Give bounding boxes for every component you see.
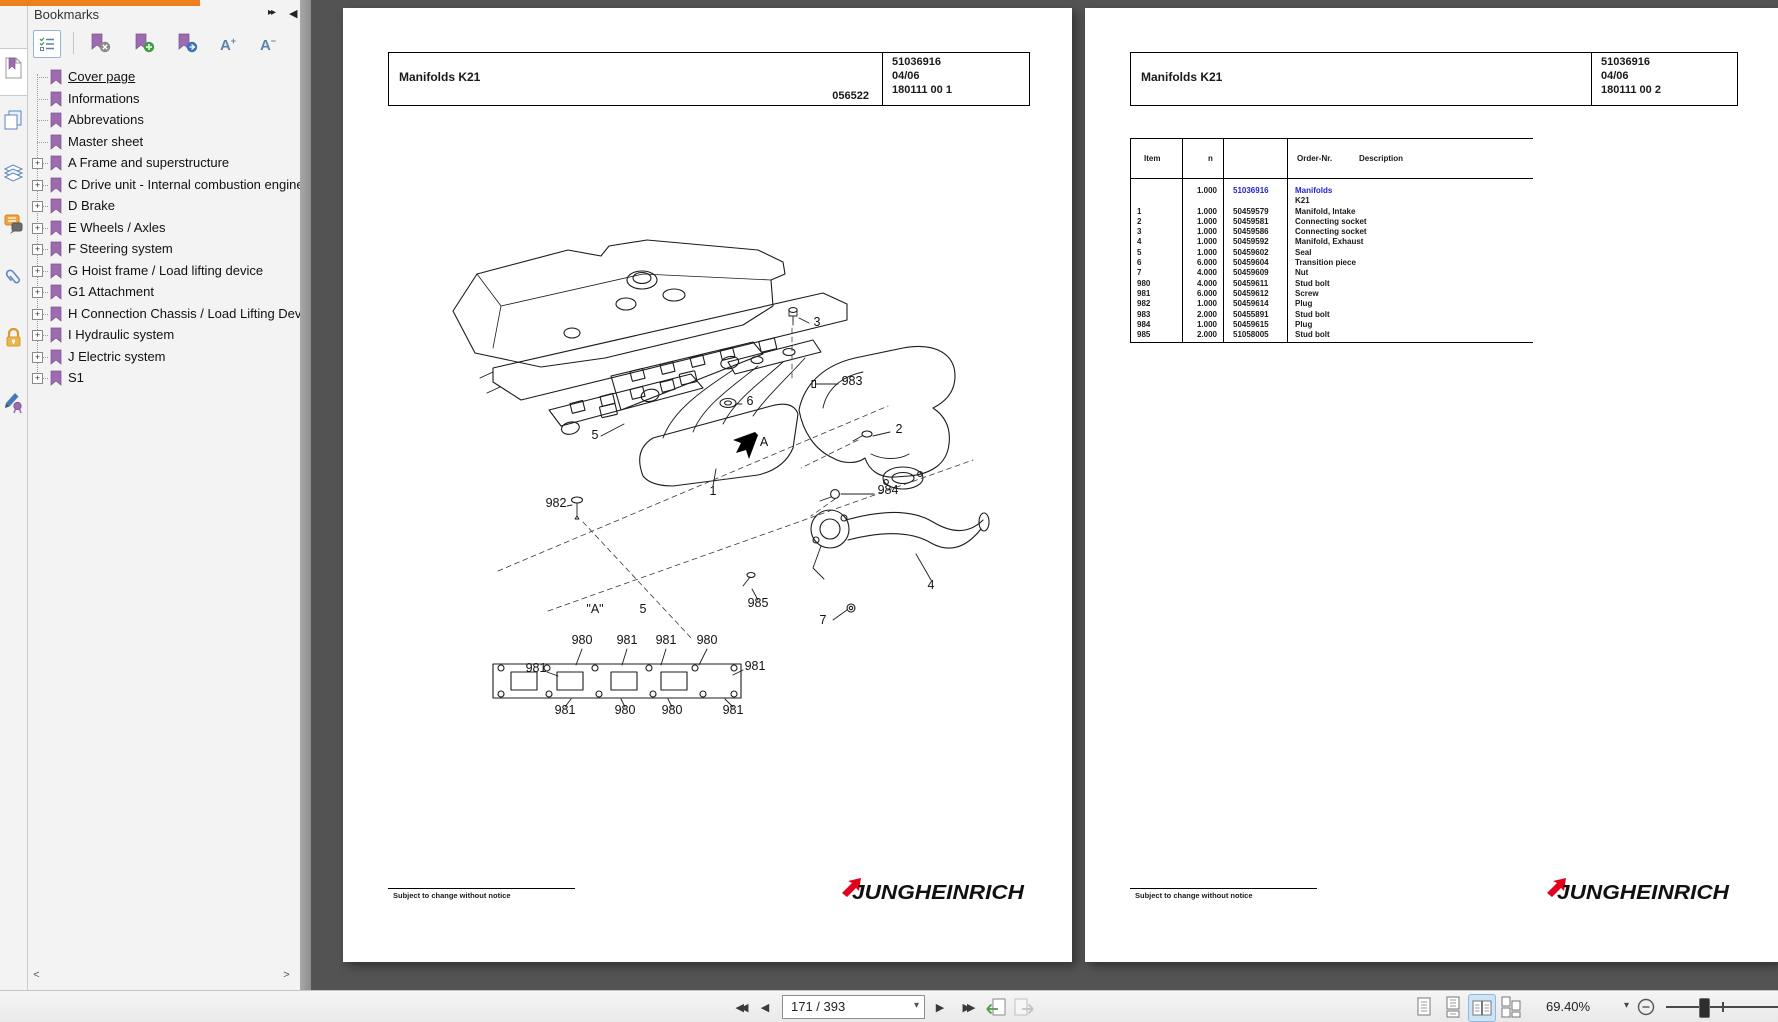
bookmark-item-label: C Drive unit - Internal combustion engin… (68, 177, 300, 192)
parts-cell-n: 1.000 (1182, 248, 1223, 258)
bookmark-item[interactable]: +E Wheels / Axles (27, 217, 300, 239)
bookmark-item[interactable]: +I Hydraulic system (27, 324, 300, 346)
bookmark-item-label: G Hoist frame / Load lifting device (68, 263, 263, 278)
diagram-callout: 980 (615, 703, 636, 717)
parts-cell-desc: Transition piece (1287, 258, 1533, 268)
parts-cell-order: 50459611 (1223, 279, 1287, 289)
parts-cell-desc: Connecting socket (1287, 227, 1533, 237)
bookmark-item-label: Cover page (68, 69, 135, 84)
bookmarks-tab[interactable] (3, 56, 24, 80)
footer-note: Subject to change without notice (393, 891, 511, 900)
bookmark-item-label: Master sheet (68, 134, 143, 149)
bookmarks-panel: Bookmarks ▸▸ ◀ (27, 0, 300, 990)
bookmark-item[interactable]: +A Frame and superstructure (27, 152, 300, 174)
next-view-button[interactable] (1012, 997, 1036, 1017)
security-panel-tab[interactable] (3, 326, 24, 350)
diagram-callout: 5 (592, 428, 599, 442)
parts-table-row: 21.00050459581Connecting socket (1130, 217, 1533, 227)
col-header-n: n (1208, 154, 1213, 163)
parts-table-row: 9821.00050459614Plug (1130, 299, 1533, 309)
expand-toggle-icon[interactable]: + (32, 309, 43, 320)
header-meta: 51036916 04/06 180111 00 2 (1601, 55, 1661, 97)
bookmark-ribbon-icon (49, 69, 63, 85)
continuous-facing-icon (1500, 996, 1522, 1018)
diagram-callout: 6 (747, 394, 754, 408)
parts-cell-desc: K21 (1287, 196, 1533, 206)
parts-cell-order: 50459592 (1223, 237, 1287, 247)
diagram-callout: 981 (617, 633, 638, 647)
diagram-callout: 981 (656, 633, 677, 647)
parts-cell-desc: Seal (1287, 248, 1533, 258)
page-number-combobox[interactable]: 171 / 393 ▾ (782, 995, 925, 1019)
bookmark-ribbon-icon (49, 177, 63, 193)
diagram-callout: 980 (572, 633, 593, 647)
parts-cell-item: 5 (1130, 248, 1182, 258)
parts-cell-n: 1.000 (1182, 227, 1223, 237)
bookmark-item-label: G1 Attachment (68, 284, 154, 299)
parts-cell-order: 50459586 (1223, 227, 1287, 237)
diagram-callout: 981 (723, 703, 744, 717)
bookmark-ribbon-icon (49, 198, 63, 214)
parts-cell-item: 6 (1130, 258, 1182, 268)
bookmark-ribbon-icon (49, 112, 63, 128)
expand-toggle-icon[interactable]: + (32, 373, 43, 384)
paperclip-icon (3, 266, 24, 290)
lock-icon (3, 326, 24, 350)
parts-cell-item (1130, 196, 1182, 206)
diagram-callout: 1 (710, 484, 717, 498)
parts-cell-desc: Stud bolt (1287, 310, 1533, 320)
parts-cell-desc: Plug (1287, 320, 1533, 330)
parts-table-row: 11.00050459579Manifold, Intake (1130, 207, 1533, 217)
bookmark-item-label: H Connection Chassis / Load Lifting Devi… (68, 306, 300, 321)
panel-resizer[interactable] (300, 0, 311, 990)
parts-cell-desc: Screw (1287, 289, 1533, 299)
expand-toggle-icon[interactable]: + (32, 180, 43, 191)
app-window: Bookmarks ▸▸ ◀ (0, 0, 1778, 1022)
bookmark-item-label: J Electric system (68, 349, 166, 364)
footer-note: Subject to change without notice (1135, 891, 1253, 900)
parts-cell-n: 6.000 (1182, 289, 1223, 299)
layers-panel-tab[interactable] (3, 160, 24, 184)
bookmark-ribbon-icon (49, 220, 63, 236)
zoom-slider-center-tick (1722, 1002, 1724, 1012)
zoom-out-button[interactable] (1637, 998, 1655, 1021)
parts-cell-item (1130, 186, 1182, 196)
bookmarks-scroll-left[interactable]: < (29, 968, 44, 984)
previous-page-button[interactable]: ◀ (755, 997, 775, 1017)
bookmark-item[interactable]: Cover page (27, 66, 300, 88)
expand-toggle-icon[interactable]: + (32, 201, 43, 212)
bookmark-item[interactable]: +J Electric system (27, 346, 300, 368)
next-view-icon (1013, 997, 1035, 1017)
parts-cell-n: 1.000 (1182, 186, 1223, 196)
page-title: Manifolds K21 (1141, 70, 1222, 84)
parts-cell-order (1223, 196, 1287, 206)
pdf-page-right: Manifolds K21 51036916 04/06 180111 00 2… (1085, 8, 1778, 962)
diagram-callout: 983 (842, 374, 863, 388)
parts-cell-n: 1.000 (1182, 237, 1223, 247)
diagram-callout: 984 (878, 483, 899, 497)
parts-cell-n: 1.000 (1182, 320, 1223, 330)
combo-caret-icon: ▾ (914, 1000, 919, 1011)
parts-cell-desc: Connecting socket (1287, 217, 1533, 227)
diagram-callout: 2 (896, 422, 903, 436)
parts-cell-order: 50459615 (1223, 320, 1287, 330)
header-divider (1591, 53, 1592, 105)
parts-cell-order: 50459604 (1223, 258, 1287, 268)
zoom-level: 69.40% (1546, 999, 1606, 1014)
parts-table-row: 66.00050459604Transition piece (1130, 258, 1533, 268)
page-indicator: 171 / 393 (791, 999, 845, 1014)
footer-rule (1130, 888, 1317, 889)
jungheinrich-logo: JUNGHEINRICH (1543, 878, 1733, 904)
order-number: 51036916 (1601, 55, 1661, 69)
diagram-callout: A (760, 435, 769, 449)
bookmark-ribbon-icon (49, 263, 63, 279)
parts-cell-order: 50459579 (1223, 207, 1287, 217)
expand-toggle-icon[interactable]: + (32, 287, 43, 298)
continuous-view-button[interactable] (1440, 994, 1466, 1020)
bookmark-item-label: S1 (68, 370, 84, 385)
bookmark-item-label: Informations (68, 91, 140, 106)
bookmark-ribbon-icon (49, 284, 63, 300)
parts-cell-item: 2 (1130, 217, 1182, 227)
zoom-dropdown-caret[interactable]: ▾ (1624, 1000, 1629, 1011)
diagram-callout: 981 (745, 659, 766, 673)
signature-icon (3, 390, 24, 414)
next-page-button[interactable]: ▶ (930, 997, 950, 1017)
facing-pages-icon (1471, 997, 1493, 1019)
last-page-button[interactable]: ▶▶ (954, 997, 984, 1017)
parts-cell-order: 51058005 (1223, 330, 1287, 340)
diagram-callout: 980 (662, 703, 683, 717)
sheet-number: 180111 00 2 (1601, 83, 1661, 97)
parts-cell-desc: Plug (1287, 299, 1533, 309)
single-page-icon (1413, 996, 1435, 1018)
bookmark-ribbon-icon (49, 241, 63, 257)
parts-cell-desc: Manifold, Exhaust (1287, 237, 1533, 247)
parts-table-body: 1.00051036916ManifoldsK2111.00050459579M… (1130, 186, 1533, 340)
parts-cell-item: 981 (1130, 289, 1182, 299)
bookmark-item[interactable]: +G1 Attachment (27, 281, 300, 303)
expand-toggle-icon[interactable]: + (32, 223, 43, 234)
col-header-order-nr: Order-Nr. (1297, 154, 1332, 163)
diagram-callout: 985 (748, 596, 769, 610)
bookmark-ribbon-icon (49, 306, 63, 322)
parts-table-row: 31.00050459586Connecting socket (1130, 227, 1533, 237)
bookmark-item-label: F Steering system (68, 241, 173, 256)
bookmark-page-icon (3, 56, 24, 80)
parts-cell-item: 3 (1130, 227, 1182, 237)
parts-table-row: 9804.00050459611Stud bolt (1130, 279, 1533, 289)
parts-table-row: 9832.00050455891Stud bolt (1130, 310, 1533, 320)
bookmark-item[interactable]: +F Steering system (27, 238, 300, 260)
parts-cell-order: 50459581 (1223, 217, 1287, 227)
parts-cell-order: 50459609 (1223, 268, 1287, 278)
parts-table-row: 9852.00051058005Stud bolt (1130, 330, 1533, 340)
bookmark-ribbon-icon (49, 134, 63, 150)
jungheinrich-logo: JUNGHEINRICH (838, 878, 1028, 904)
exploded-diagram: 398362A5198498298574"A"59809819819809819… (343, 8, 1072, 962)
panel-tab-strip (0, 0, 28, 990)
parts-cell-desc: Stud bolt (1287, 279, 1533, 289)
parts-table-row: 41.00050459592Manifold, Exhaust (1130, 237, 1533, 247)
diagram-callout: 981 (555, 703, 576, 717)
parts-table-row: 9841.00050459615Plug (1130, 320, 1533, 330)
footer-rule (388, 888, 575, 889)
parts-cell-desc: Manifold, Intake (1287, 207, 1533, 217)
previous-view-button[interactable] (984, 997, 1008, 1017)
bookmark-item[interactable]: Abbrevations (27, 109, 300, 131)
pages-panel-tab[interactable] (3, 108, 24, 132)
diagram-callout: 980 (697, 633, 718, 647)
bookmark-item[interactable]: Informations (27, 88, 300, 110)
bookmark-item-label: D Brake (68, 198, 115, 213)
diagram-callout: 5 (640, 602, 647, 616)
bookmark-item[interactable]: +C Drive unit - Internal combustion engi… (27, 174, 300, 196)
parts-cell-n: 1.000 (1182, 299, 1223, 309)
brand-text: JUNGHEINRICH (1557, 882, 1730, 904)
expand-toggle-icon[interactable]: + (32, 266, 43, 277)
page-header-table: Manifolds K21 51036916 04/06 180111 00 2 (1130, 52, 1738, 106)
bookmark-item-label: A Frame and superstructure (68, 155, 229, 170)
accent-bar (0, 0, 200, 6)
parts-cell-item: 1 (1130, 207, 1182, 217)
col-header-item: Item (1144, 154, 1160, 163)
previous-view-icon (985, 997, 1007, 1017)
bookmark-ribbon-icon (49, 349, 63, 365)
bookmark-item[interactable]: +S1 (27, 367, 300, 389)
bookmark-item[interactable]: Master sheet (27, 131, 300, 153)
parts-cell-order: 50459602 (1223, 248, 1287, 258)
attachments-panel-tab[interactable] (3, 266, 24, 290)
date: 04/06 (1601, 69, 1661, 83)
parts-cell-desc: Nut (1287, 268, 1533, 278)
diagram-callout: 3 (814, 315, 821, 329)
parts-table: Item n Order-Nr. Description 1.000510369… (1130, 138, 1533, 343)
parts-cell-item: 985 (1130, 330, 1182, 340)
bookmark-item-label: Abbrevations (68, 112, 144, 127)
parts-table-row: 9816.00050459612Screw (1130, 289, 1533, 299)
parts-cell-n: 4.000 (1182, 268, 1223, 278)
bookmark-ribbon-icon (49, 370, 63, 386)
first-page-button[interactable]: ◀◀ (727, 997, 757, 1017)
parts-cell-n: 6.000 (1182, 258, 1223, 268)
bookmark-item[interactable]: +H Connection Chassis / Load Lifting Dev… (27, 303, 300, 325)
comments-icon (3, 212, 24, 236)
bookmark-tree: Cover pageInformationsAbbrevationsMaster… (27, 0, 300, 990)
parts-cell-n: 1.000 (1182, 217, 1223, 227)
parts-table-row: 51.00050459602Seal (1130, 248, 1533, 258)
single-page-view-button[interactable] (1411, 994, 1437, 1020)
parts-cell-item: 983 (1130, 310, 1182, 320)
parts-cell-item: 4 (1130, 237, 1182, 247)
comments-panel-tab[interactable] (3, 212, 24, 236)
document-canvas: Manifolds K21 056522 51036916 04/06 1801… (311, 0, 1778, 990)
status-bar: ◀◀ ◀ 171 / 393 ▾ ▶ ▶▶ (0, 990, 1778, 1022)
col-header-description: Description (1359, 154, 1403, 163)
pdf-page-left: Manifolds K21 056522 51036916 04/06 1801… (343, 8, 1072, 962)
part-link[interactable]: 51036916 (1223, 186, 1287, 196)
bookmark-item-label: I Hydraulic system (68, 327, 174, 342)
parts-cell-order: 50459614 (1223, 299, 1287, 309)
pages-icon (3, 108, 24, 132)
expand-toggle-icon[interactable]: + (32, 352, 43, 363)
parts-cell-n (1182, 196, 1223, 206)
bookmark-item-label: E Wheels / Axles (68, 220, 166, 235)
signature-panel-tab[interactable] (3, 390, 24, 414)
continuous-facing-view-button[interactable] (1498, 994, 1524, 1020)
brand-text: JUNGHEINRICH (852, 882, 1025, 904)
bookmark-ribbon-icon (49, 327, 63, 343)
expand-toggle-icon[interactable]: + (32, 158, 43, 169)
parts-cell-item: 7 (1130, 268, 1182, 278)
diagram-callout: 4 (928, 578, 935, 592)
bookmark-item[interactable]: +G Hoist frame / Load lifting device (27, 260, 300, 282)
parts-cell-item: 984 (1130, 320, 1182, 330)
diagram-callout: 981 (526, 661, 547, 675)
parts-cell-item: 982 (1130, 299, 1182, 309)
parts-table-row: 74.00050459609Nut (1130, 268, 1533, 278)
bookmark-ribbon-icon (49, 91, 63, 107)
part-link[interactable]: Manifolds (1287, 186, 1533, 196)
diagram-callout: "A" (586, 602, 603, 616)
parts-cell-item: 980 (1130, 279, 1182, 289)
parts-cell-n: 4.000 (1182, 279, 1223, 289)
parts-table-row: 1.00051036916Manifolds (1130, 186, 1533, 196)
continuous-pages-icon (1442, 996, 1464, 1018)
zoom-slider-handle[interactable] (1699, 998, 1710, 1018)
parts-cell-n: 1.000 (1182, 207, 1223, 217)
parts-cell-n: 2.000 (1182, 330, 1223, 340)
facing-view-button[interactable] (1468, 994, 1496, 1022)
parts-table-header: Item n Order-Nr. Description (1130, 139, 1533, 179)
expand-toggle-icon[interactable]: + (32, 330, 43, 341)
parts-cell-desc: Stud bolt (1287, 330, 1533, 340)
bookmark-ribbon-icon (49, 155, 63, 171)
bookmarks-scroll-right[interactable]: > (279, 968, 294, 984)
parts-cell-n: 2.000 (1182, 310, 1223, 320)
bookmark-item[interactable]: +D Brake (27, 195, 300, 217)
parts-cell-order: 50455891 (1223, 310, 1287, 320)
expand-toggle-icon[interactable]: + (32, 244, 43, 255)
minus-circle-icon (1637, 998, 1655, 1016)
layers-icon (3, 160, 24, 184)
parts-cell-order: 50459612 (1223, 289, 1287, 299)
diagram-callout: 982 (546, 496, 567, 510)
diagram-callout: 7 (820, 613, 827, 627)
parts-table-row: K21 (1130, 196, 1533, 206)
